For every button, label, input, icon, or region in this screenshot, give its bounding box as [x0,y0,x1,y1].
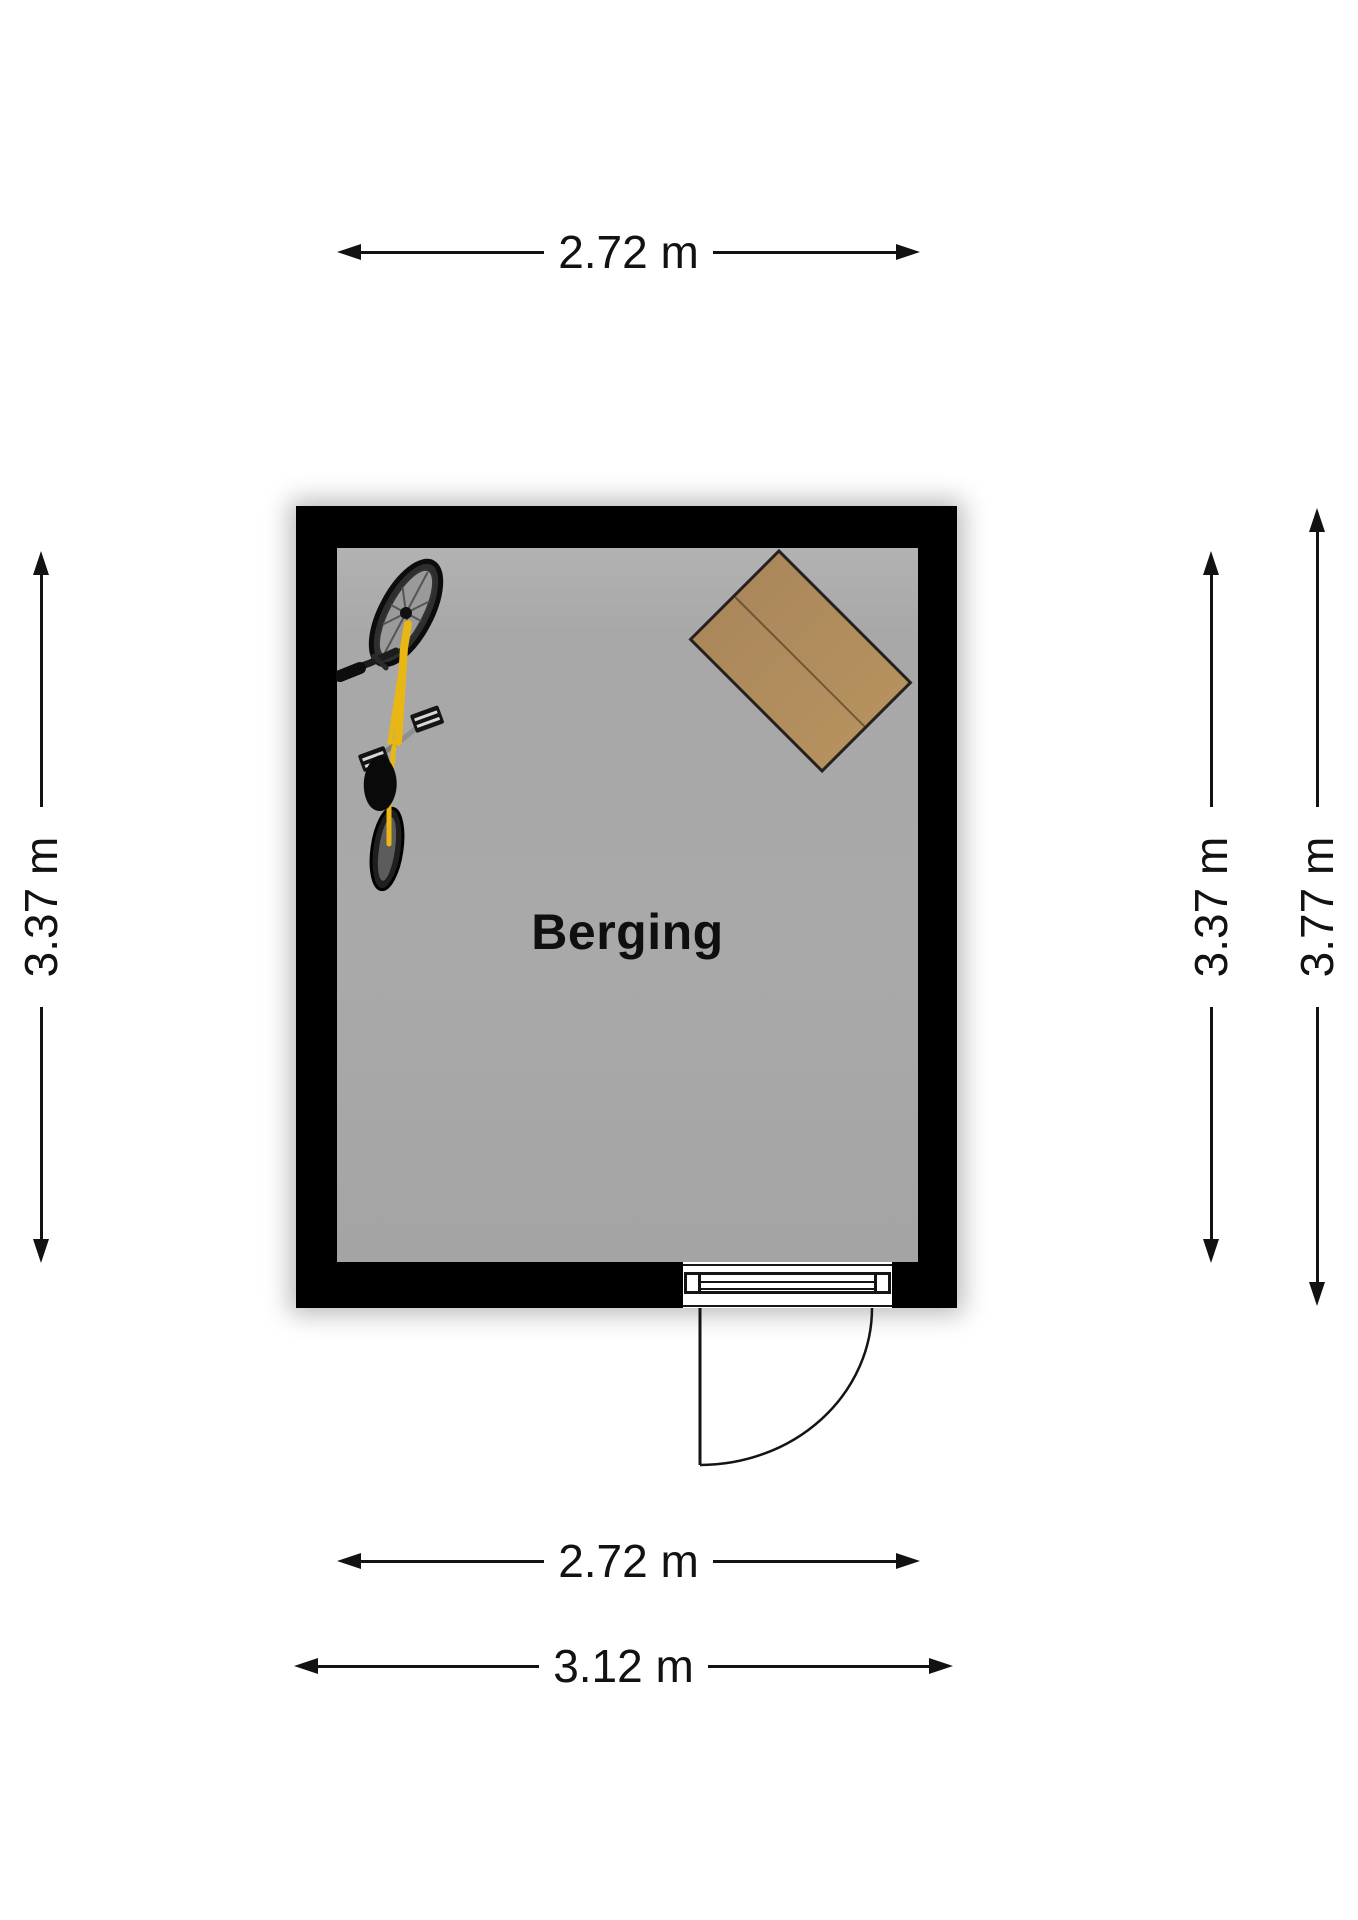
dimension-line [1210,575,1213,807]
dimension-label: 3.77 m [1289,807,1345,1007]
arrowhead-up-icon [1203,551,1219,575]
door-sill-line [700,1288,875,1290]
door-sill-line [700,1281,875,1283]
arrowhead-up-icon [1309,508,1325,532]
dimension-label: 2.72 m [558,229,699,275]
dimension-right-inner-height: 3.37 m [1183,551,1239,1263]
door-jamb-right [874,1272,891,1294]
dimension-line [361,251,544,254]
door-threshold-line [683,1264,892,1266]
dimension-line [318,1665,539,1668]
arrowhead-left-icon [294,1658,318,1674]
dimension-left-height: 3.37 m [13,551,69,1263]
dimension-label: 3.37 m [13,807,69,1007]
door-jamb-left [684,1272,701,1294]
dimension-label: 3.12 m [553,1643,694,1689]
bicycle-icon [336,552,446,892]
dimension-label: 2.72 m [558,1538,699,1584]
dimension-line [713,1560,896,1563]
arrowhead-up-icon [33,551,49,575]
room-name-label: Berging [337,903,918,961]
dimension-line [713,251,896,254]
door-sill [700,1272,875,1294]
dimension-line [1316,532,1319,807]
arrowhead-down-icon [33,1239,49,1263]
dimension-line [40,575,43,807]
arrowhead-down-icon [1203,1239,1219,1263]
dimension-bottom-inner-width: 2.72 m [337,1533,920,1589]
dimension-line [361,1560,544,1563]
floor-plan: 2.72 m [0,0,1358,1920]
arrowhead-right-icon [896,1553,920,1569]
door-swing [660,1300,920,1500]
arrowhead-left-icon [337,1553,361,1569]
dimension-line [1210,1007,1213,1239]
dimension-label: 3.37 m [1183,807,1239,1007]
arrowhead-down-icon [1309,1282,1325,1306]
door-swing-arc [700,1308,872,1465]
arrowhead-left-icon [337,244,361,260]
dimension-bottom-outer-width: 3.12 m [294,1638,953,1694]
dimension-line [1316,1007,1319,1282]
dimension-line [40,1007,43,1239]
dimension-top-width: 2.72 m [337,224,920,280]
dimension-right-outer-height: 3.77 m [1289,508,1345,1306]
arrowhead-right-icon [896,244,920,260]
arrowhead-right-icon [929,1658,953,1674]
dimension-line [708,1665,929,1668]
